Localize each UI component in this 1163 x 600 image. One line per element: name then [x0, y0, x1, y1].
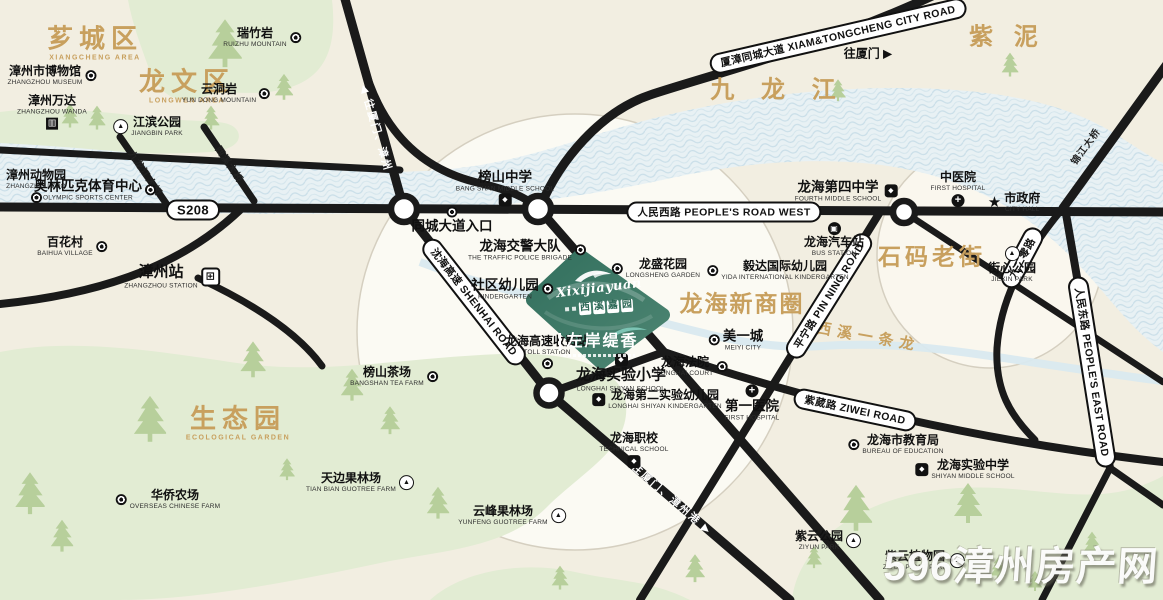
- poi-label: 云洞岩: [182, 83, 256, 96]
- poi-tcm-hospital: 中医院FIRST HOSPITAL+: [931, 171, 986, 207]
- hospital-icon: +: [746, 384, 759, 397]
- poi-sublabel: FIRST HOSPITAL: [725, 414, 780, 421]
- poi-label: 江滨公园: [131, 116, 183, 129]
- poi-label: 天边果林场: [306, 472, 396, 485]
- poi-label: 龙海职校: [599, 432, 668, 445]
- poi-label: 紫云公园: [795, 530, 843, 543]
- poi-label: 百花村: [37, 236, 93, 249]
- poi-city-hall: ★市政府CITY HALL: [988, 192, 1040, 214]
- poi-longhai-bus-station: ▣龙海汽车站BUS STATION: [804, 222, 864, 258]
- poi-sublabel: MEIYI CITY: [723, 344, 764, 351]
- poi-fourth-middle-school: 龙海第四中学FOURTH MIDDLE SCHOOL◆: [795, 179, 898, 202]
- roundabout: [537, 381, 562, 406]
- poi-sublabel: RUIZHU MOUNTAIN: [223, 42, 287, 49]
- project-name-char: 园: [621, 299, 634, 312]
- school-icon: ◆: [592, 393, 605, 406]
- poi-sublabel: FIRST HOSPITAL: [931, 186, 986, 193]
- train-icon: ⊞: [201, 268, 220, 287]
- poi-sublabel: OLYMPIC SPORTS CENTER: [34, 194, 142, 201]
- poi-sublabel: JIEXIN PARK: [988, 277, 1036, 284]
- school-icon: ◆: [628, 455, 641, 468]
- area-label-longhai-new-business-circle: 龙海新商圈: [680, 292, 805, 317]
- poi-meiyi-city: 美一城MEIYI CITY: [709, 328, 764, 351]
- project-subtitle-bar: [563, 354, 635, 357]
- poi-label: 漳州站: [124, 264, 198, 281]
- poi-shiyan-middle-school: ◆龙海实验中学SHIYAN MIDDLE SCHOOL: [915, 459, 1014, 481]
- poi-zhangzhou-station: 漳州站ZHANGZHOU STATION⊞: [124, 264, 220, 289]
- poi-label: 龙海第二实验幼儿园: [608, 389, 722, 402]
- dot-icon: [709, 335, 720, 346]
- poi-sublabel: LONGHAI SHIYAN KINDERGARTEN: [608, 404, 722, 411]
- poi-j_park: ▲街心公园JIEXIN PARK: [988, 246, 1036, 284]
- poi-label: 榜山茶场: [350, 366, 424, 379]
- area-label: 生态园: [190, 404, 286, 434]
- roundabout: [893, 201, 915, 223]
- pine-tree-icon: [1002, 53, 1019, 77]
- poi-label: 美一城: [723, 328, 764, 343]
- park-icon: ▲: [846, 533, 861, 548]
- poi-bangshan-middle-school: 榜山中学BANG SHAN MIDDLE SCHOOL◆: [456, 169, 555, 206]
- poi-yundong-mountain: 云洞岩YUN DONG MOUNTAIN: [182, 83, 270, 105]
- dot-icon: [86, 70, 97, 81]
- pine-tree-icon: [685, 554, 705, 582]
- poi-label: 龙海实验中学: [931, 459, 1014, 472]
- school-icon: ◆: [915, 463, 928, 476]
- poi-tongcheng-entrance: 同城大道入口: [412, 206, 493, 233]
- area-label: 石码老街: [878, 244, 986, 270]
- poi-label: 瑞竹岩: [223, 27, 287, 40]
- building-icon: ▥: [46, 117, 58, 129]
- location-map: Xixijiayuan 西溪嘉园 左岸缇香 596漳州房产网 瑞竹岩RUIZHU…: [0, 0, 1163, 600]
- sail-icon: ▲: [113, 119, 128, 134]
- poi-zhangzhou-museum: 漳州市博物馆ZHANGZHOU MUSEUM: [7, 65, 96, 87]
- dot-icon: [259, 88, 270, 99]
- poi-label: 龙海交警大队: [468, 238, 572, 253]
- hospital-icon: +: [952, 194, 965, 207]
- road-label-s208: S208: [166, 200, 220, 221]
- road-station: [0, 210, 240, 304]
- poi-label: 云峰果林场: [458, 505, 548, 518]
- poi-label: 龙海第四中学: [795, 179, 882, 194]
- area-sublabel: ECOLOGICAL GARDEN: [186, 435, 290, 442]
- poi-sublabel: ZHANGZHOU STATION: [124, 282, 198, 289]
- poi-label: 中医院: [931, 171, 986, 184]
- dot-icon: [707, 265, 718, 276]
- poi-label: 社区幼儿园: [471, 277, 539, 292]
- poi-bangshan-tea-farm: 榜山茶场BANGSHAN TEA FARM: [350, 366, 438, 388]
- area-label: 芗城区: [47, 24, 143, 54]
- poi-sublabel: BUS STATION: [804, 251, 864, 258]
- poi-sublabel: YIDA INTERNATIONAL KINDERGARTEN: [721, 275, 848, 282]
- poi-label: 华侨农场: [130, 489, 221, 502]
- dot-icon: [427, 371, 438, 382]
- poi-baihua-village: 百花村BAIHUA VILLAGE: [37, 236, 107, 258]
- bus-icon: ▣: [827, 222, 840, 235]
- poi-sublabel: KINDERGARTEN: [471, 293, 539, 300]
- poi-sublabel: FOURTH MIDDLE SCHOOL: [795, 195, 882, 202]
- poi-sublabel: ZHANGZHOU MUSEUM: [7, 80, 82, 87]
- star-icon: ★: [988, 195, 1001, 210]
- poi-sublabel: BANGSHAN TEA FARM: [350, 381, 424, 388]
- dot-icon: [848, 439, 859, 450]
- poi-second-shiyan-kindergarten: ◆龙海第二实验幼儿园LONGHAI SHIYAN KINDERGARTEN: [592, 389, 722, 411]
- park-icon: ▲: [1004, 246, 1019, 261]
- area-label-xiangcheng-district: 芗城区XIANGCHENG AREA: [47, 26, 143, 63]
- area-label-zini: 紫 泥: [969, 24, 1045, 49]
- poi-label: 同城大道入口: [412, 218, 493, 233]
- poi-sublabel: TIAN BIAN GUOTREE FARM: [306, 487, 396, 494]
- poi-sublabel: YUNFENG GUOTREE FARM: [458, 520, 548, 527]
- poi-longhai-technical-school: 龙海职校TECHNICAL SCHOOL◆: [599, 432, 668, 468]
- area-label-shima-old-street: 石码老街: [878, 245, 986, 270]
- dot-icon: [145, 185, 156, 196]
- poi-sublabel: BANG SHAN MIDDLE SCHOOL: [456, 185, 555, 192]
- poi-olympic-sports-center: 奥林匹克体育中心OLYMPIC SPORTS CENTER: [34, 178, 156, 201]
- project-name-char: 嘉: [607, 300, 620, 313]
- project-name-char: 溪: [593, 301, 606, 314]
- school-icon: ◆: [884, 185, 897, 198]
- poi-sublabel: TECHNICAL SCHOOL: [599, 447, 668, 454]
- poi-yida-kindergarten: 毅达国际幼儿园YIDA INTERNATIONAL KINDERGARTEN: [707, 260, 848, 282]
- poi-yunfeng-farm: 云峰果林场YUNFENG GUOTREE FARM▲: [458, 505, 566, 527]
- road-label-renmin-west-road: 人民西路 PEOPLE'S ROAD WEST: [626, 202, 821, 223]
- poi-label: 榜山中学: [456, 169, 555, 184]
- poi-sublabel: BUREAU OF EDUCATION: [862, 449, 943, 456]
- poi-overseas-chinese-farm: 华侨农场OVERSEAS CHINESE FARM: [116, 489, 221, 511]
- area-label-jiulong-river: 九 龙 江: [710, 77, 845, 102]
- poi-label: 龙海市教育局: [862, 434, 943, 447]
- poi-zhangzhou-wanda: 漳州万达ZHANGZHOU WANDA▥: [17, 95, 87, 130]
- poi-label: 毅达国际幼儿园: [721, 260, 848, 273]
- poi-label: 漳州万达: [17, 95, 87, 108]
- poi-sublabel: BAIHUA VILLAGE: [37, 251, 93, 258]
- poi-label: 龙海实验小学: [576, 367, 666, 384]
- poi-ziyun-park: 紫云公园ZIYUN PARK▲: [795, 530, 861, 552]
- poi-label: 第一医院: [725, 398, 780, 413]
- project-name-char: 西: [579, 302, 592, 315]
- poi-tianbian-farm: 天边果林场TIAN BIAN GUOTREE FARM▲: [306, 472, 414, 494]
- dot-icon: [290, 32, 301, 43]
- poi-sublabel: JIANGBIN PARK: [131, 131, 183, 138]
- watermark: 596漳州房产网: [882, 534, 1161, 592]
- area-label: 紫 泥: [969, 23, 1045, 50]
- poi-sublabel: YUN DONG MOUNTAIN: [182, 98, 256, 105]
- project-name: 左岸缇香: [559, 333, 638, 351]
- school-icon: ◆: [498, 194, 511, 207]
- poi-label: 漳州市博物馆: [7, 65, 82, 78]
- road-label-to-xiamen: 往厦门 ▶: [844, 45, 893, 62]
- poi-education-bureau: 龙海市教育局BUREAU OF EDUCATION: [848, 434, 943, 456]
- area-label: 龙海新商圈: [680, 291, 805, 317]
- area-label-ecological-garden: 生态园ECOLOGICAL GARDEN: [186, 406, 290, 443]
- dot-icon: [96, 241, 107, 252]
- sail-icon: ▲: [399, 475, 414, 490]
- dot-icon: [447, 206, 458, 217]
- poi-label: 市政府: [1004, 192, 1040, 205]
- poi-sublabel: SHIYAN MIDDLE SCHOOL: [931, 474, 1014, 481]
- project-logo: Xixijiayuan 西溪嘉园 左岸缇香: [533, 254, 665, 366]
- poi-sublabel: CITY HALL: [1004, 207, 1040, 214]
- dot-icon: [116, 494, 127, 505]
- poi-ruizhuyan: 瑞竹岩RUIZHU MOUNTAIN: [223, 27, 301, 49]
- project-tagline-block: 左岸缇香: [533, 326, 665, 357]
- sail-icon: ▲: [551, 508, 566, 523]
- poi-sublabel: ZHANGZHOU WANDA: [17, 109, 87, 116]
- dot-icon: [716, 361, 727, 372]
- poi-label: 街心公园: [988, 262, 1036, 275]
- area-label: 九 龙 江: [710, 76, 845, 103]
- area-sublabel: XIANGCHENG AREA: [47, 55, 143, 62]
- poi-sublabel: OVERSEAS CHINESE FARM: [130, 504, 221, 511]
- poi-longhai-court: 龙海法院LONGHAI COURT: [657, 356, 728, 378]
- poi-label: 奥林匹克体育中心: [34, 178, 142, 193]
- poi-jiangbin-park: ▲江滨公园JIANGBIN PARK: [113, 116, 183, 138]
- poi-sublabel: ZIYUN PARK: [795, 545, 843, 552]
- poi-label: 龙海汽车站: [804, 236, 864, 249]
- poi-first-hospital: +第一医院FIRST HOSPITAL: [725, 384, 780, 421]
